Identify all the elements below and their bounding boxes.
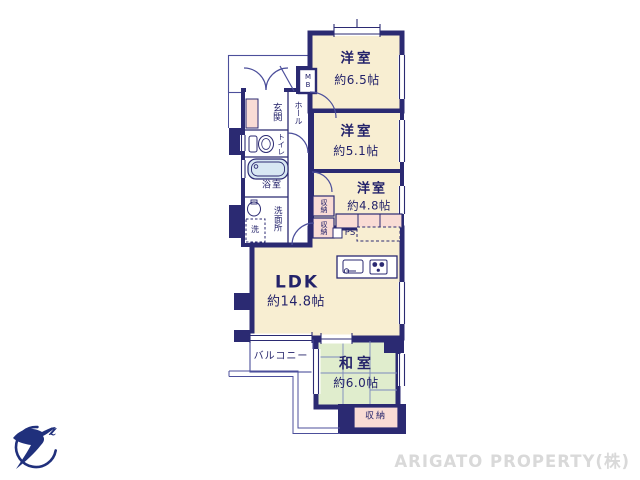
washing-machine-label: 洗 <box>251 226 259 234</box>
ps-dashed-area <box>357 227 400 241</box>
japanese-room-size: 約6.0帖 <box>333 377 379 389</box>
bathtub-icon <box>248 159 288 179</box>
shoe-cabinet <box>246 99 258 128</box>
meter-box-label: MB <box>304 73 311 89</box>
logo-glyph: z <box>48 424 57 439</box>
ldk-label: LDK <box>275 275 319 292</box>
balcony-label: バルコニー <box>254 352 309 362</box>
western-room-1-label: 洋室 <box>341 52 374 66</box>
western-room-2 <box>312 111 402 171</box>
washroom-label: 洗面所 <box>273 206 282 232</box>
western-room-3-label: 洋室 <box>357 183 387 196</box>
western-room-2-size: 約5.1帖 <box>333 145 379 157</box>
floorplan-canvas: 洋室 約6.5帖 洋室 約5.1帖 洋室 約4.8帖 LDK 約14.8帖 和室… <box>0 0 640 480</box>
closet-lower-label: 収納 <box>320 221 327 235</box>
ldk-size: 約14.8帖 <box>267 296 325 309</box>
bath-label: 浴室 <box>262 182 282 191</box>
closet-upper-label: 収納 <box>320 199 327 213</box>
western-room-3-size: 約4.8帖 <box>347 200 391 212</box>
entrance-label: 玄関 <box>271 103 281 122</box>
japanese-room-label: 和室 <box>339 357 375 371</box>
pipe-space-label: PS <box>345 229 356 238</box>
hall-label: ホール <box>294 101 302 125</box>
ps-shaft-box <box>333 228 342 238</box>
bird-compass-logo: z <box>10 416 64 472</box>
western-room-1 <box>310 33 402 111</box>
kitchen-counter <box>337 256 397 278</box>
washitsu-closet-label: 収納 <box>365 413 387 422</box>
western-room-1-size: 約6.5帖 <box>334 74 380 86</box>
floorplan-drawing <box>0 0 640 480</box>
company-watermark: ARIGATO PROPERTY(株) <box>394 448 630 472</box>
western-room-2-label: 洋室 <box>341 125 374 139</box>
toilet-label: トイレ <box>277 133 285 156</box>
